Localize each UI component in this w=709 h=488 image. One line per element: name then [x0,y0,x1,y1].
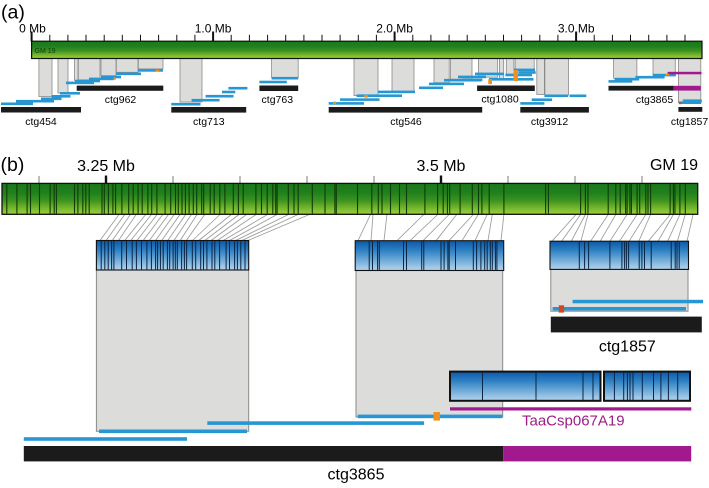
svg-text:ctg1857: ctg1857 [599,339,656,356]
svg-text:(a): (a) [1,1,25,23]
svg-text:ctg1857: ctg1857 [671,116,709,128]
svg-text:ctg3865: ctg3865 [636,94,674,106]
svg-text:3.25 Mb: 3.25 Mb [77,158,135,175]
svg-text:ctg546: ctg546 [390,116,422,128]
svg-text:ctg713: ctg713 [193,116,225,128]
svg-text:TaaCsp067A19: TaaCsp067A19 [522,413,625,430]
svg-text:ctg3912: ctg3912 [531,116,569,128]
svg-text:3.0 Mb: 3.0 Mb [558,22,595,36]
svg-text:2.0 Mb: 2.0 Mb [376,22,413,36]
svg-text:ctg3865: ctg3865 [328,467,385,484]
svg-text:3.5 Mb: 3.5 Mb [417,158,466,175]
svg-text:1.0 Mb: 1.0 Mb [195,22,232,36]
svg-text:GM 19: GM 19 [35,48,56,55]
svg-text:ctg1080: ctg1080 [481,94,519,106]
svg-text:ctg454: ctg454 [25,116,57,128]
svg-text:ctg763: ctg763 [262,94,294,106]
svg-text:ctg962: ctg962 [105,94,137,106]
svg-text:(b): (b) [1,154,25,176]
svg-text:0 Mb: 0 Mb [19,22,46,36]
svg-text:GM 19: GM 19 [650,157,698,174]
